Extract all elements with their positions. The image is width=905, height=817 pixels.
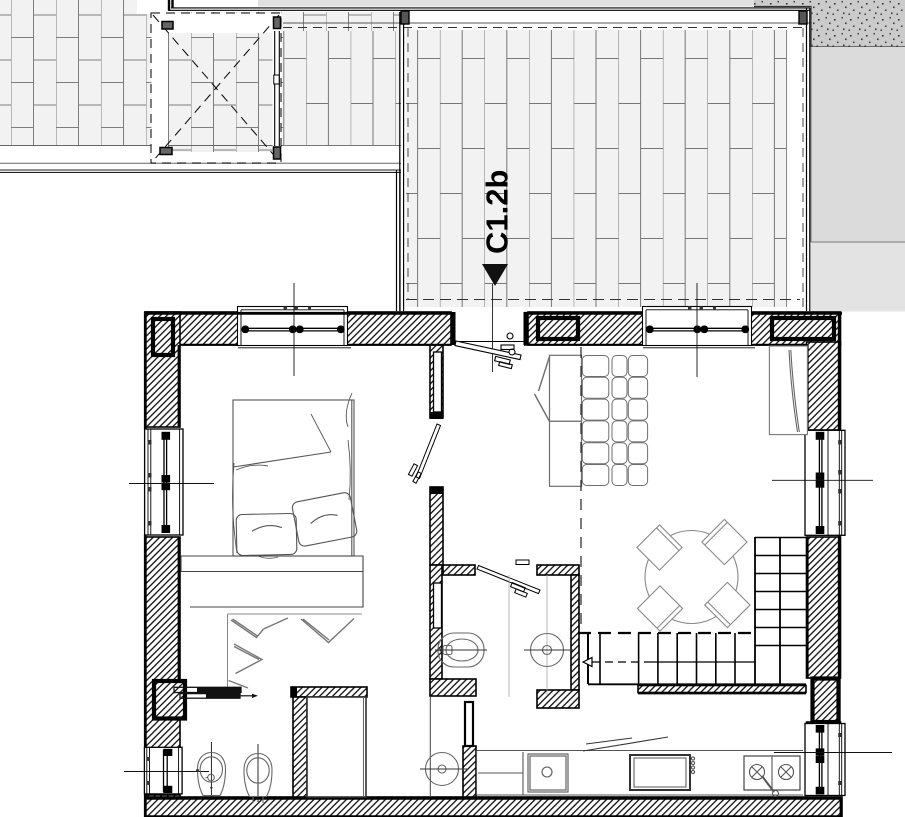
svg-text:C1.2b: C1.2b	[480, 170, 515, 254]
